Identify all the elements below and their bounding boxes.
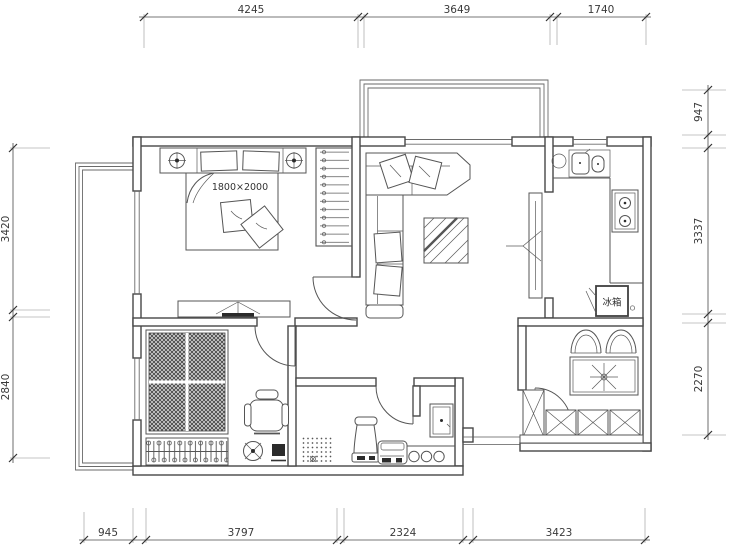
- dim-bottom-2: 3797: [228, 527, 255, 539]
- living-room: [366, 153, 470, 318]
- coffee-table: [424, 218, 468, 263]
- desk-chair: [245, 390, 289, 434]
- balcony-left-window: [76, 163, 134, 470]
- shower-mat: [300, 437, 334, 463]
- dining-chair: [571, 330, 601, 353]
- door-bathroom: [376, 386, 413, 424]
- dim-left-2: 2840: [0, 374, 12, 401]
- vanity: [407, 446, 455, 462]
- dimension-right: 947 3337 2270: [682, 85, 726, 440]
- dining-chair: [606, 330, 636, 353]
- dimension-left: 3420 2840: [0, 143, 50, 463]
- door-kitchen-sliding: [506, 193, 542, 298]
- sink: [552, 149, 610, 177]
- wardrobe: [316, 148, 352, 246]
- dimension-top: 4245 3649 1740: [139, 4, 651, 48]
- second-bedroom: [146, 330, 289, 465]
- refrigerator: 冰箱: [586, 286, 635, 316]
- stove: [612, 190, 638, 232]
- tv-cabinet: [178, 301, 290, 317]
- bathroom: [300, 404, 455, 464]
- entry-cabinets: [520, 390, 643, 443]
- toilet: [352, 417, 379, 462]
- dim-right-3: 2270: [693, 366, 705, 393]
- bay-window-top: [360, 80, 548, 144]
- dining-room: [520, 330, 643, 443]
- dim-top-3: 1740: [588, 4, 615, 16]
- dim-right-2: 3337: [693, 218, 705, 245]
- washing-machine: [378, 441, 407, 464]
- radiator: [146, 438, 228, 465]
- dim-bottom-1: 945: [98, 527, 118, 539]
- dim-top-2: 3649: [444, 4, 471, 16]
- dim-bottom-3: 2324: [390, 527, 417, 539]
- dim-top-1: 4245: [238, 4, 265, 16]
- tv-unit: [271, 444, 286, 461]
- fridge-label: 冰箱: [602, 297, 621, 309]
- plant-icon: [590, 363, 618, 391]
- bed-size-label: 1800×2000: [212, 182, 268, 193]
- kitchen: 冰箱: [552, 149, 643, 316]
- dining-table: [570, 357, 638, 395]
- fan-symbol: [244, 442, 263, 461]
- hatched-bed: [146, 330, 228, 434]
- dim-bottom-4: 3423: [546, 527, 573, 539]
- master-bedroom: 1800×2000: [160, 148, 352, 317]
- dimension-bottom: 945 3797 2324 3423: [79, 508, 650, 544]
- mirror-cabinet: [430, 404, 453, 437]
- dim-right-1: 947: [693, 102, 705, 122]
- door-master-bedroom: [313, 277, 356, 320]
- dim-left-1: 3420: [0, 216, 12, 243]
- floor-plan: 4245 3649 1740 945 3797 2324 3423: [0, 0, 740, 555]
